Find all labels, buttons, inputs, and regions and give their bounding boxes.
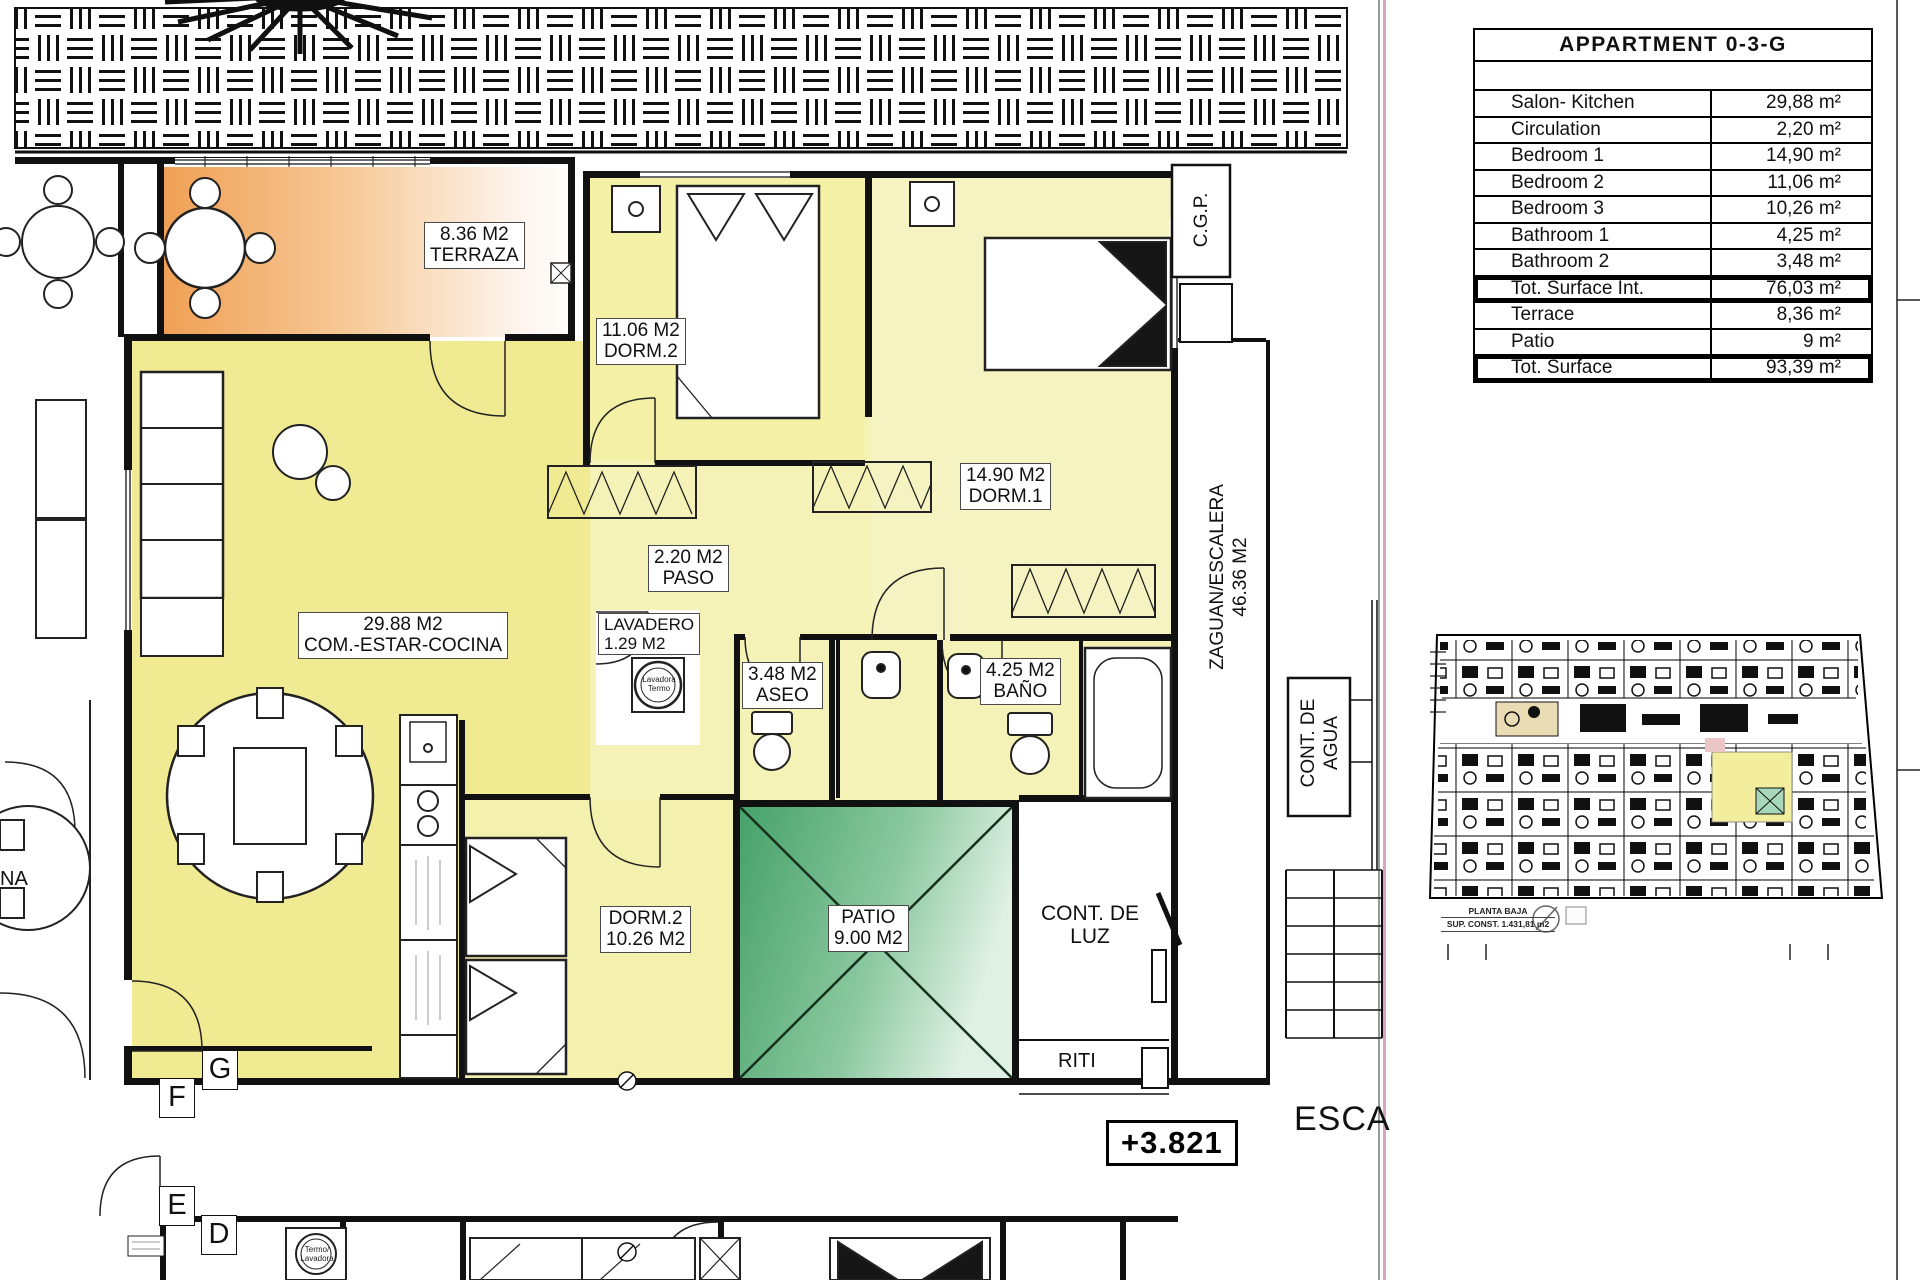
zaguan-line1: ZAGUAN/ESCALERA [1206,482,1229,672]
label-na: NA [0,868,28,890]
label-dorm3: DORM.2 10.26 M2 [600,906,691,953]
unit-letter-f: F [159,1078,195,1118]
table-row-total: Tot. Surface93,39 m² [1475,356,1871,381]
table-row: Bedroom 310,26 m² [1475,197,1871,224]
table-row: Bathroom 23,48 m² [1475,250,1871,277]
lavadero-area: 1.29 M2 [604,634,694,653]
salon-name: COM.-ESTAR-COCINA [304,635,502,656]
cont-luz-line1: CONT. DE [1030,902,1150,925]
washer-label: Lavadora Termo [640,676,678,694]
dorm3-area: 10.26 M2 [606,929,685,950]
left-neighbor [0,176,124,1080]
label-riti: RITI [1058,1050,1096,1072]
table-row: Salon- Kitchen29,88 m² [1475,91,1871,118]
label-esca: ESCA [1294,1100,1391,1139]
table-row: Bedroom 211,06 m² [1475,171,1871,198]
area-table-title: APPARTMENT 0-3-G [1475,30,1871,62]
level-marker: +3.821 [1106,1120,1238,1166]
label-patio: PATIO 9.00 M2 [828,905,909,952]
table-row: Bedroom 114,90 m² [1475,144,1871,171]
terraza-name: TERRAZA [430,245,519,266]
dorm1-name: DORM.1 [966,486,1045,507]
unit-letter-d: D [201,1215,237,1255]
salon-area: 29.88 M2 [304,614,502,635]
unit-letter-e: E [159,1186,195,1226]
dorm1-area: 14.90 M2 [966,465,1045,486]
patio-area: 9.00 M2 [834,928,903,949]
label-cont-luz: CONT. DE LUZ [1030,902,1150,948]
staircase [1286,870,1382,1038]
caption-line1: PLANTA BAJA [1441,905,1555,918]
washer2-label: Termo/ Lavadora [298,1246,336,1264]
label-bano: 4.25 M2 BAÑO [980,658,1061,705]
label-paso: 2.20 M2 PASO [648,545,729,592]
cont-agua-line1: CONT. DE [1297,678,1320,808]
terraza-area: 8.36 M2 [430,224,519,245]
key-plan [1430,635,1882,932]
table-row: Circulation2,20 m² [1475,118,1871,145]
area-table-empty-row [1475,62,1871,91]
dorm2-name: DORM.2 [602,341,680,362]
cont-agua-line2: AGUA [1320,678,1343,808]
label-salon: 29.88 M2 COM.-ESTAR-COCINA [298,612,508,659]
bano-area: 4.25 M2 [986,660,1055,681]
label-aseo: 3.48 M2 ASEO [742,662,823,709]
drain-symbols [618,1072,636,1261]
paso-name: PASO [654,568,723,589]
label-dorm1: 14.90 M2 DORM.1 [960,463,1051,510]
caption-line2: SUP. CONST. 1.431,81 m2 [1441,918,1555,931]
bano-name: BAÑO [986,681,1055,702]
label-lavadero: LAVADERO 1.29 M2 [598,613,700,655]
aseo-area: 3.48 M2 [748,664,817,685]
label-terraza: 8.36 M2 TERRAZA [424,222,525,269]
table-row: Patio9 m² [1475,330,1871,357]
floorplan-page: 8.36 M2 TERRAZA 11.06 M2 DORM.2 14.90 M2… [0,0,1920,1280]
table-row: Bathroom 14,25 m² [1475,224,1871,251]
table-row: Terrace8,36 m² [1475,303,1871,330]
label-cgp: C.G.P. [1190,170,1213,270]
aseo-name: ASEO [748,685,817,706]
area-table: APPARTMENT 0-3-G Salon- Kitchen29,88 m² … [1473,28,1873,383]
lavadero-name: LAVADERO [604,615,694,634]
patio-name: PATIO [834,907,903,928]
zaguan-line2: 46.36 M2 [1229,482,1252,672]
cont-luz-line2: LUZ [1030,925,1150,948]
paso-area: 2.20 M2 [654,547,723,568]
label-cont-agua: CONT. DE AGUA [1297,678,1343,808]
unit-letter-g: G [202,1050,238,1090]
label-dorm2: 11.06 M2 DORM.2 [596,318,686,365]
bottom-unit [128,1228,990,1280]
table-row-total-int: Tot. Surface Int.76,03 m² [1475,277,1871,304]
dorm2-area: 11.06 M2 [602,320,680,341]
key-plan-caption: PLANTA BAJA SUP. CONST. 1.431,81 m2 [1441,905,1555,932]
label-zaguan: ZAGUAN/ESCALERA 46.36 M2 [1206,482,1252,672]
dorm3-name: DORM.2 [606,908,685,929]
hatch-band [15,8,1347,152]
